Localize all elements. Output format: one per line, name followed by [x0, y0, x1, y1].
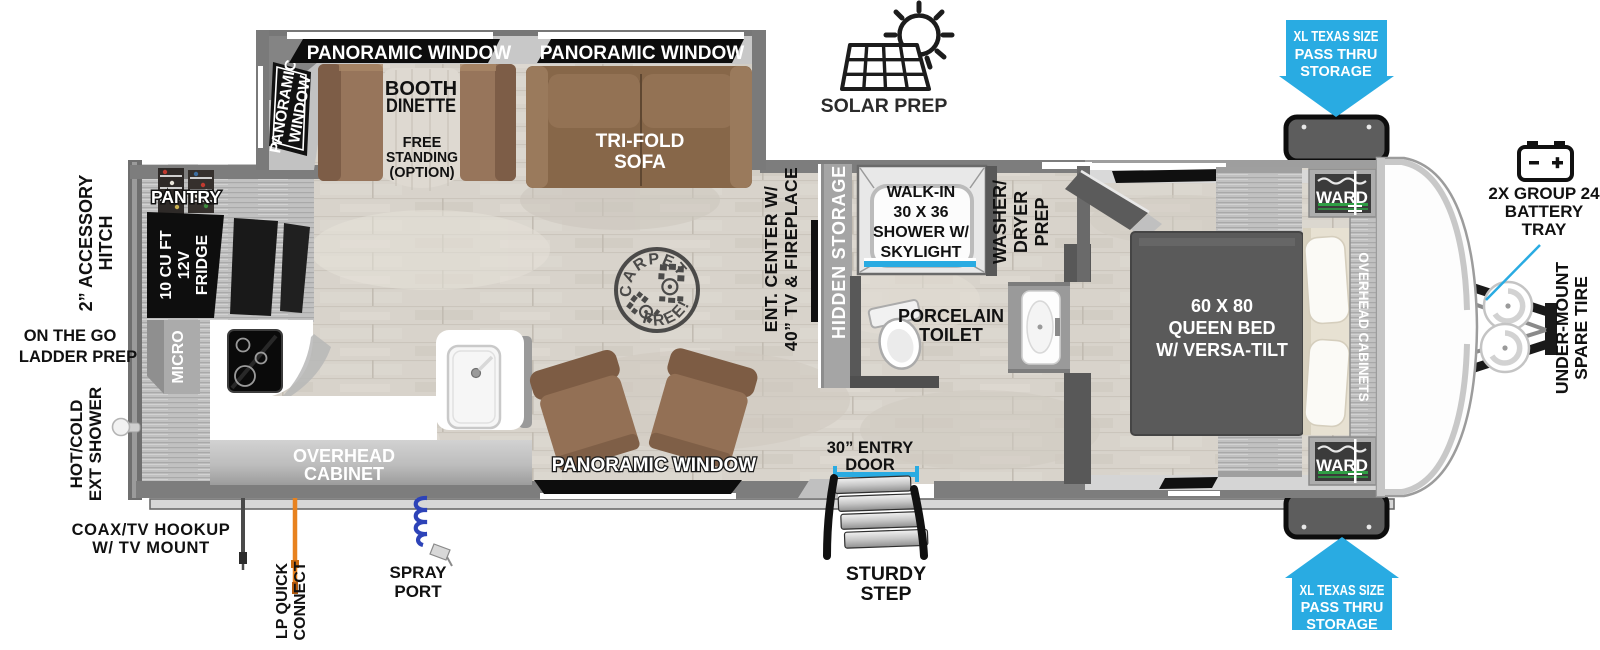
svg-text:SPARE TIRE: SPARE TIRE [1571, 276, 1591, 380]
svg-text:DRYER: DRYER [1011, 191, 1031, 253]
svg-text:DOOR: DOOR [845, 456, 895, 474]
svg-text:BATTERY: BATTERY [1505, 202, 1584, 221]
svg-text:SHOWER W/: SHOWER W/ [873, 224, 970, 241]
svg-text:QUEEN BED: QUEEN BED [1168, 318, 1275, 338]
svg-text:SOFA: SOFA [614, 152, 666, 173]
svg-text:W/ VERSA-TILT: W/ VERSA-TILT [1156, 340, 1288, 360]
svg-text:UNDER-MOUNT: UNDER-MOUNT [1552, 262, 1572, 395]
svg-text:PREP: PREP [1032, 197, 1052, 246]
svg-text:LADDER PREP: LADDER PREP [19, 348, 137, 366]
svg-text:FREE: FREE [403, 135, 442, 151]
svg-text:HIDDEN STORAGE: HIDDEN STORAGE [829, 165, 849, 339]
svg-text:WARD: WARD [1316, 456, 1368, 475]
svg-text:ON THE GO: ON THE GO [24, 327, 117, 345]
svg-text:PANORAMIC WINDOW: PANORAMIC WINDOW [552, 455, 756, 476]
svg-text:DINETTE: DINETTE [386, 96, 456, 117]
svg-text:40” TV & FIREPLACE: 40” TV & FIREPLACE [781, 167, 801, 351]
svg-text:CONNECT: CONNECT [292, 561, 309, 640]
svg-text:OVERHEAD CABINETS: OVERHEAD CABINETS [1356, 252, 1371, 401]
svg-text:COAX/TV HOOKUP: COAX/TV HOOKUP [72, 521, 231, 539]
svg-text:HOT/COLD: HOT/COLD [67, 400, 86, 489]
svg-text:OVERHEAD: OVERHEAD [293, 446, 395, 466]
svg-text:SKYLIGHT: SKYLIGHT [881, 244, 962, 261]
svg-text:CABINET: CABINET [304, 464, 384, 484]
svg-text:PANORAMIC WINDOW: PANORAMIC WINDOW [540, 43, 744, 64]
svg-text:STEP: STEP [861, 583, 912, 605]
svg-text:PANORAMIC WINDOW: PANORAMIC WINDOW [307, 43, 511, 64]
svg-text:12V: 12V [176, 250, 193, 279]
svg-text:30” ENTRY: 30” ENTRY [827, 439, 914, 457]
svg-text:2” ACCESSORY: 2” ACCESSORY [76, 175, 96, 312]
svg-text:MICRO: MICRO [170, 330, 187, 383]
svg-text:LP QUICK: LP QUICK [274, 562, 291, 639]
svg-text:EXT SHOWER: EXT SHOWER [86, 387, 105, 501]
svg-text:STANDING: STANDING [386, 150, 458, 166]
svg-text:W/ TV MOUNT: W/ TV MOUNT [92, 539, 210, 557]
svg-text:ENT. CENTER W/: ENT. CENTER W/ [761, 186, 781, 333]
svg-text:PASS THRU: PASS THRU [1295, 47, 1378, 63]
svg-text:PORT: PORT [394, 582, 442, 601]
svg-text:WASHER/: WASHER/ [990, 180, 1010, 264]
svg-text:FRIDGE: FRIDGE [194, 234, 211, 295]
svg-text:XL TEXAS SIZE: XL TEXAS SIZE [1294, 29, 1379, 45]
svg-text:XL TEXAS SIZE: XL TEXAS SIZE [1300, 583, 1385, 599]
svg-text:60 X 80: 60 X 80 [1191, 296, 1253, 316]
svg-text:HITCH: HITCH [96, 216, 116, 271]
svg-text:10 CU FT: 10 CU FT [158, 230, 175, 300]
svg-text:PORCELAIN: PORCELAIN [898, 306, 1004, 326]
svg-text:SOLAR PREP: SOLAR PREP [821, 95, 948, 117]
svg-text:PASS THRU: PASS THRU [1301, 600, 1384, 616]
svg-text:STORAGE: STORAGE [1306, 617, 1378, 633]
svg-text:(OPTION): (OPTION) [389, 165, 454, 181]
svg-text:STORAGE: STORAGE [1300, 64, 1372, 80]
svg-text:SPRAY: SPRAY [389, 563, 447, 582]
svg-text:30 X 36: 30 X 36 [893, 204, 948, 221]
svg-text:TRI-FOLD: TRI-FOLD [596, 131, 685, 152]
svg-text:2X GROUP 24: 2X GROUP 24 [1488, 184, 1600, 203]
svg-text:TRAY: TRAY [1522, 220, 1567, 239]
svg-text:WALK-IN: WALK-IN [887, 184, 955, 201]
svg-text:WARD: WARD [1316, 188, 1368, 207]
svg-text:PANTRY: PANTRY [151, 187, 221, 207]
svg-text:STURDY: STURDY [846, 563, 926, 585]
svg-text:TOILET: TOILET [919, 325, 983, 345]
